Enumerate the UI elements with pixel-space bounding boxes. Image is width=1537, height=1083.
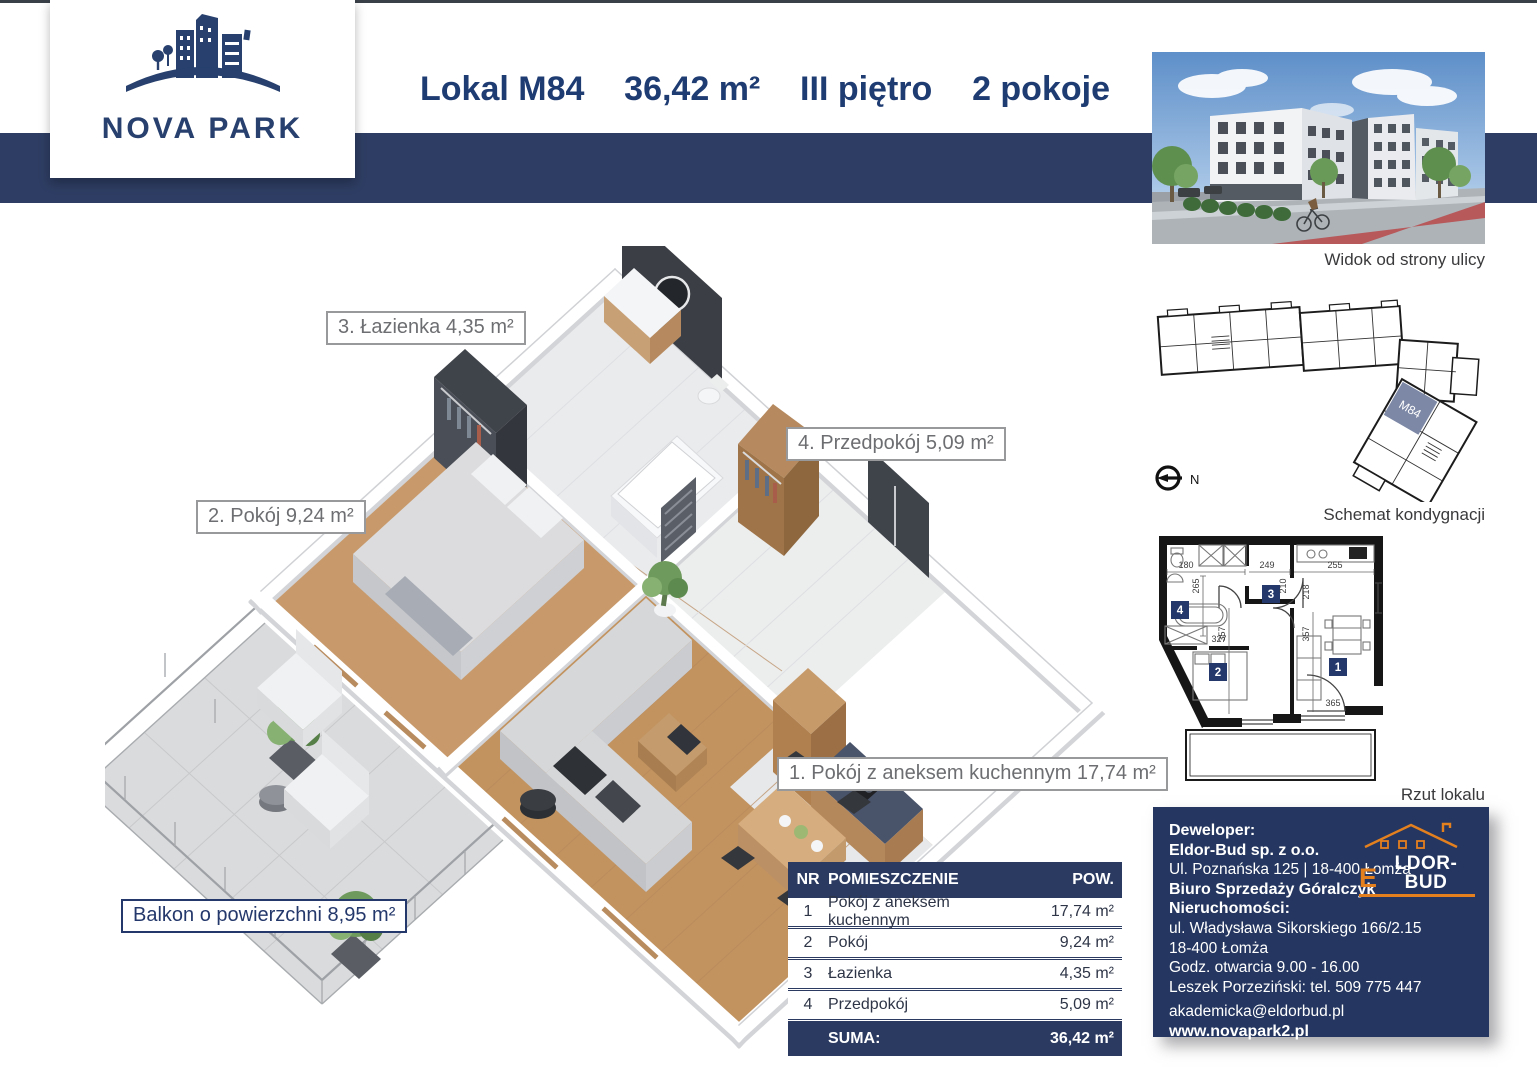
- eldorbud-name: LDOR-BUD: [1377, 854, 1475, 892]
- plant-icon: [933, 14, 985, 60]
- row-area: 9,24 m²: [1034, 934, 1122, 952]
- schematic-caption: Schemat kondygnacji: [1152, 505, 1485, 525]
- svg-text:249: 249: [1259, 560, 1274, 570]
- unit-area: 36,42 m²: [624, 70, 760, 109]
- label-room2: 2. Pokój 9,24 m²: [196, 500, 366, 534]
- room-areas-table: NR POMIESZCZENIE POW. 1 Pokój z aneksem …: [788, 862, 1122, 1056]
- feature-park-line2: handlowego i centrum: [484, 29, 648, 48]
- row-area: 4,35 m²: [1034, 965, 1122, 983]
- map-pin-icon: [418, 12, 468, 64]
- dev-email: akademicka@eldorbud.pl: [1169, 1002, 1473, 1022]
- table-header-row: NR POMIESZCZENIE POW.: [788, 862, 1122, 898]
- svg-text:357: 357: [1301, 626, 1311, 641]
- compass-icon: [1157, 467, 1182, 489]
- plan-badge-3: 3: [1268, 589, 1274, 601]
- table-row: 4 Przedpokój 5,09 m²: [788, 991, 1122, 1022]
- street-view-photo: [1152, 52, 1485, 244]
- label-hall: 4. Przedpokój 5,09 m²: [786, 427, 1006, 461]
- svg-text:365: 365: [1325, 698, 1340, 708]
- row-room: Przedpokój: [828, 996, 1034, 1014]
- eldorbud-letter: E: [1359, 865, 1377, 892]
- svg-text:180: 180: [1178, 560, 1193, 570]
- col-header-area: POW.: [1034, 871, 1122, 889]
- table-footer-row: SUMA: 36,42 m²: [788, 1022, 1122, 1056]
- brand-logo-card: NOVA PARK: [50, 0, 355, 178]
- table-row: 3 Łazienka 4,35 m²: [788, 960, 1122, 991]
- label-balcony: Balkon o powierzchni 8,95 m²: [121, 899, 407, 933]
- brand-name: NOVA PARK: [102, 112, 303, 146]
- feature-park-line1: Bliskość Parku: [484, 10, 648, 29]
- col-header-nr: NR: [788, 871, 828, 889]
- flyer-page: NOVA PARK Lokal M84 36,42 m² III piętro …: [0, 0, 1537, 1083]
- feature-transport: Dobra komunikacja z centrum miasta: [688, 16, 901, 58]
- unit-title-row: Lokal M84 36,42 m² III piętro 2 pokoje: [420, 70, 1110, 109]
- row-nr: 1: [788, 903, 828, 921]
- row-nr: 4: [788, 996, 828, 1014]
- developer-info-box: ELDOR-BUD Deweloper: Eldor-Bud sp. z o.o…: [1153, 807, 1489, 1037]
- row-room: Pokój z aneksem kuchennym: [828, 894, 1034, 930]
- dev-office-city: 18-400 Łomża: [1169, 939, 1473, 959]
- plan-badge-1: 1: [1335, 662, 1342, 674]
- dev-office-street: ul. Władysława Sikorskiego 166/2.15: [1169, 919, 1473, 939]
- suma-value: 36,42 m²: [1034, 1030, 1122, 1048]
- label-living: 1. Pokój z aneksem kuchennym 17,74 m²: [777, 757, 1168, 791]
- feature-park-line3: medycznego: [484, 48, 648, 67]
- col-header-room: POMIESZCZENIE: [828, 871, 1034, 889]
- unit-number: Lokal M84: [420, 70, 584, 109]
- row-nr: 2: [788, 934, 828, 952]
- dev-phone: Leszek Porzeziński: tel. 509 775 447: [1169, 978, 1473, 998]
- feature-transport-line2: z centrum miasta: [758, 37, 901, 56]
- dev-website: www.novapark2.pl: [1169, 1022, 1473, 1042]
- unit-floor: III piętro: [800, 70, 932, 109]
- feature-transport-line1: Dobra komunikacja: [758, 18, 901, 37]
- feature-green-line1: Otwarte, zielone: [1001, 18, 1120, 37]
- table-row: 1 Pokój z aneksem kuchennym 17,74 m²: [788, 898, 1122, 929]
- eldorbud-underline: [1359, 894, 1475, 897]
- row-nr: 3: [788, 965, 828, 983]
- table-row: 2 Pokój 9,24 m²: [788, 929, 1122, 960]
- plan-badge-2: 2: [1215, 667, 1221, 679]
- suma-label: SUMA:: [828, 1030, 1034, 1048]
- row-room: Pokój: [828, 934, 1034, 952]
- eldorbud-logo: ELDOR-BUD: [1359, 819, 1475, 897]
- feature-park: Bliskość Parku handlowego i centrum medy…: [418, 10, 648, 67]
- unit-2d-plan-caption: Rzut lokalu: [1152, 785, 1485, 805]
- floor-schematic: M84 N: [1152, 288, 1489, 502]
- plan-badge-4: 4: [1177, 605, 1184, 617]
- row-area: 17,74 m²: [1034, 903, 1122, 921]
- svg-text:210: 210: [1278, 578, 1288, 593]
- feature-green-line2: przestrzenie: [1001, 37, 1120, 56]
- svg-text:327: 327: [1211, 634, 1226, 644]
- eldorbud-house-icon: [1359, 819, 1475, 849]
- row-area: 5,09 m²: [1034, 996, 1122, 1014]
- label-bathroom: 3. Łazienka 4,35 m²: [326, 311, 526, 345]
- svg-text:255: 255: [1327, 560, 1342, 570]
- unit-2d-plan: 1 2 3 4 180 249 255 265 210 218 357 357 …: [1153, 528, 1405, 784]
- compass-label: N: [1190, 472, 1199, 487]
- novapark-skyline-icon: [118, 0, 288, 110]
- row-room: Łazienka: [828, 965, 1034, 983]
- dev-hours: Godz. otwarcia 9.00 - 16.00: [1169, 958, 1473, 978]
- svg-text:218: 218: [1301, 584, 1311, 599]
- feature-green: Otwarte, zielone przestrzenie: [933, 14, 1120, 60]
- unit-rooms: 2 pokoje: [972, 70, 1110, 109]
- svg-text:265: 265: [1191, 578, 1201, 593]
- photo-caption: Widok od strony ulicy: [1152, 250, 1485, 270]
- car-icon: [688, 16, 742, 58]
